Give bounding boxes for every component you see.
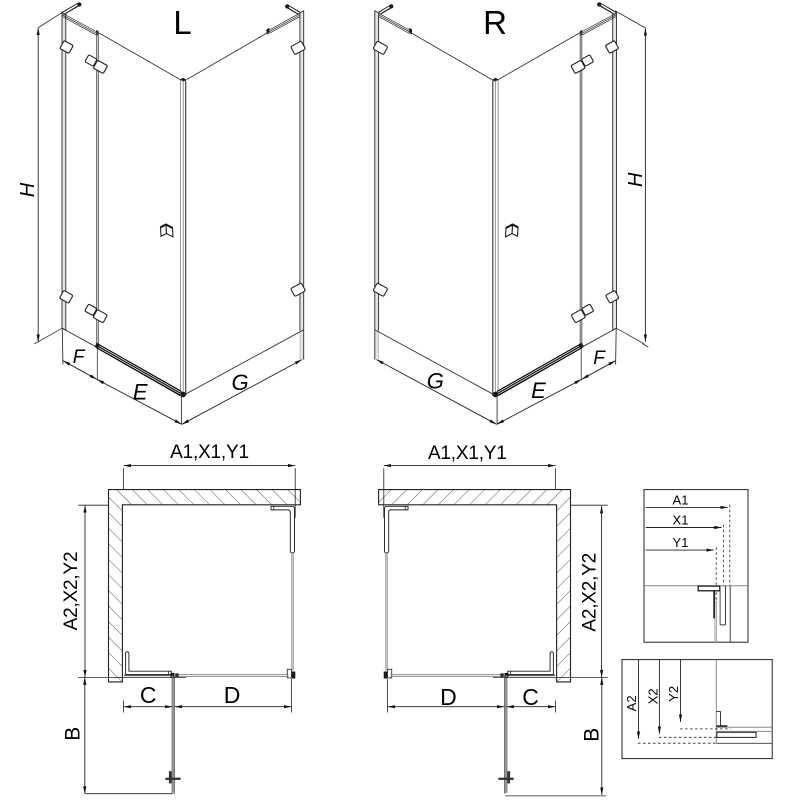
svg-text:A2: A2 [624,695,639,711]
svg-text:E: E [133,380,148,405]
svg-text:F: F [73,347,86,368]
svg-text:D: D [224,682,241,708]
svg-text:B: B [61,727,84,741]
svg-text:A2,X2,Y2: A2,X2,Y2 [61,552,82,631]
svg-text:A1,X1,Y1: A1,X1,Y1 [170,442,249,463]
svg-text:X2: X2 [645,688,660,704]
svg-text:E: E [531,378,546,403]
svg-text:Y2: Y2 [666,686,681,702]
svg-text:H: H [625,172,647,187]
svg-text:D: D [440,684,457,710]
svg-text:B: B [580,728,603,742]
svg-text:C: C [140,682,157,708]
svg-text:A1: A1 [673,492,689,507]
svg-text:X1: X1 [673,512,689,527]
svg-text:C: C [522,684,539,710]
svg-text:L: L [173,4,191,41]
svg-text:Y1: Y1 [673,535,689,550]
svg-text:F: F [593,348,606,369]
svg-text:R: R [483,4,507,41]
svg-text:A2,X2,Y2: A2,X2,Y2 [579,553,600,632]
svg-text:G: G [231,370,248,395]
svg-text:G: G [427,369,444,394]
svg-text:H: H [17,182,39,197]
svg-text:A1,X1,Y1: A1,X1,Y1 [428,443,507,464]
